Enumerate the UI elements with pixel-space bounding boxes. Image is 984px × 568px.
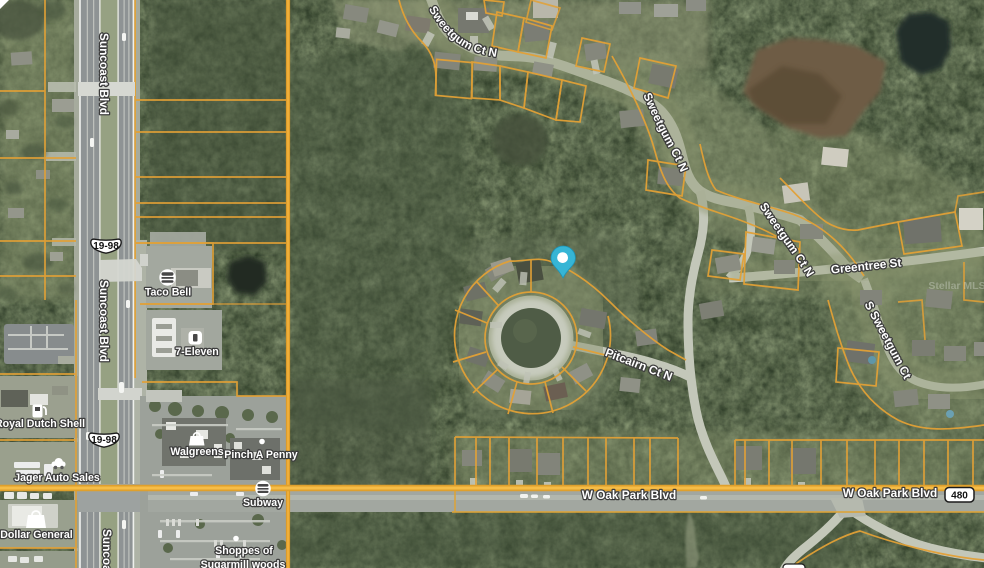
svg-text:Suncoast Blvd: Suncoast Blvd <box>100 529 114 568</box>
svg-text:Taco Bell: Taco Bell <box>145 287 191 299</box>
svg-text:7-Eleven: 7-Eleven <box>175 346 219 358</box>
svg-text:Jager Auto Sales: Jager Auto Sales <box>14 472 100 484</box>
svg-text:W Oak Park Blvd: W Oak Park Blvd <box>843 486 937 500</box>
svg-text:Suncoast Blvd: Suncoast Blvd <box>97 33 111 115</box>
svg-text:Stellar MLS: Stellar MLS <box>928 280 984 292</box>
svg-text:Walgreens: Walgreens <box>170 446 223 458</box>
svg-text:Royal Dutch Shell: Royal Dutch Shell <box>0 418 85 430</box>
svg-text:Pinch A Penny: Pinch A Penny <box>224 449 297 461</box>
svg-text:W Oak Park Blvd: W Oak Park Blvd <box>582 488 676 502</box>
svg-text:19-98: 19-98 <box>91 435 117 446</box>
svg-text:Shoppes of: Shoppes of <box>215 545 273 557</box>
svg-text:Sugarmill woods: Sugarmill woods <box>201 559 286 568</box>
svg-text:Dollar General: Dollar General <box>0 529 72 541</box>
svg-text:19-98: 19-98 <box>93 241 119 252</box>
svg-text:Suncoast Blvd: Suncoast Blvd <box>97 280 111 362</box>
svg-text:480: 480 <box>951 491 968 502</box>
svg-text:Subway: Subway <box>243 497 283 509</box>
